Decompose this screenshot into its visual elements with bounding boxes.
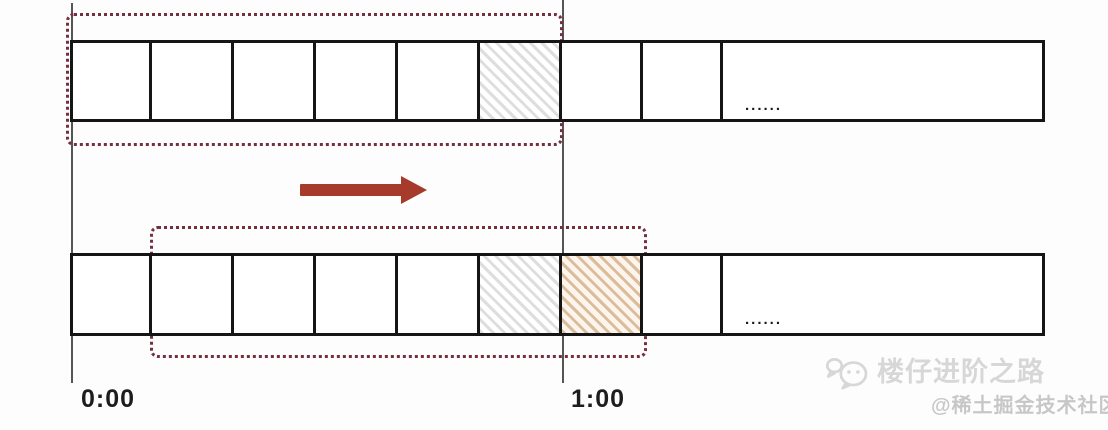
timeline-cell-ellipsis: ...... — [723, 43, 1042, 119]
ellipsis-text: ...... — [745, 98, 782, 113]
timeline-cell — [398, 43, 480, 119]
timeline-cell — [398, 256, 480, 333]
timeline-cell — [562, 43, 643, 119]
watermark-primary-text: 楼仔进阶之路 — [877, 359, 1045, 386]
timeline-cell-hatched-gray — [480, 43, 562, 119]
timeline-cell — [73, 43, 152, 119]
time-label-end: 1:00 — [571, 387, 625, 412]
sliding-window-diagram: ...... ...... 0:00 1:00 楼仔进阶之路 @稀土掘金技术社区 — [0, 0, 1108, 430]
timeline-cell — [643, 43, 723, 119]
timeline-cell — [316, 43, 398, 119]
watermark-primary: 楼仔进阶之路 — [824, 354, 1045, 390]
timeline-bar-top: ...... — [70, 40, 1045, 122]
ellipsis-text: ...... — [745, 312, 782, 327]
timeline-cell-hatched-gray — [480, 256, 562, 333]
timeline-cell — [316, 256, 398, 333]
timeline-cell — [643, 256, 723, 333]
timeline-cell — [152, 256, 234, 333]
watermark-secondary-text: @稀土掘金技术社区 — [931, 396, 1108, 416]
slide-arrow — [300, 184, 403, 196]
slide-arrow-head-icon — [401, 176, 427, 204]
time-label-start: 0:00 — [81, 387, 135, 412]
timeline-bar-bottom: ...... — [70, 253, 1045, 336]
timeline-cell — [234, 256, 316, 333]
timeline-cell-hatched-brown — [562, 256, 643, 333]
timeline-cell-ellipsis: ...... — [723, 256, 1042, 333]
wechat-icon — [824, 354, 872, 390]
timeline-cell — [73, 256, 152, 333]
timeline-cell — [152, 43, 234, 119]
timeline-cell — [234, 43, 316, 119]
